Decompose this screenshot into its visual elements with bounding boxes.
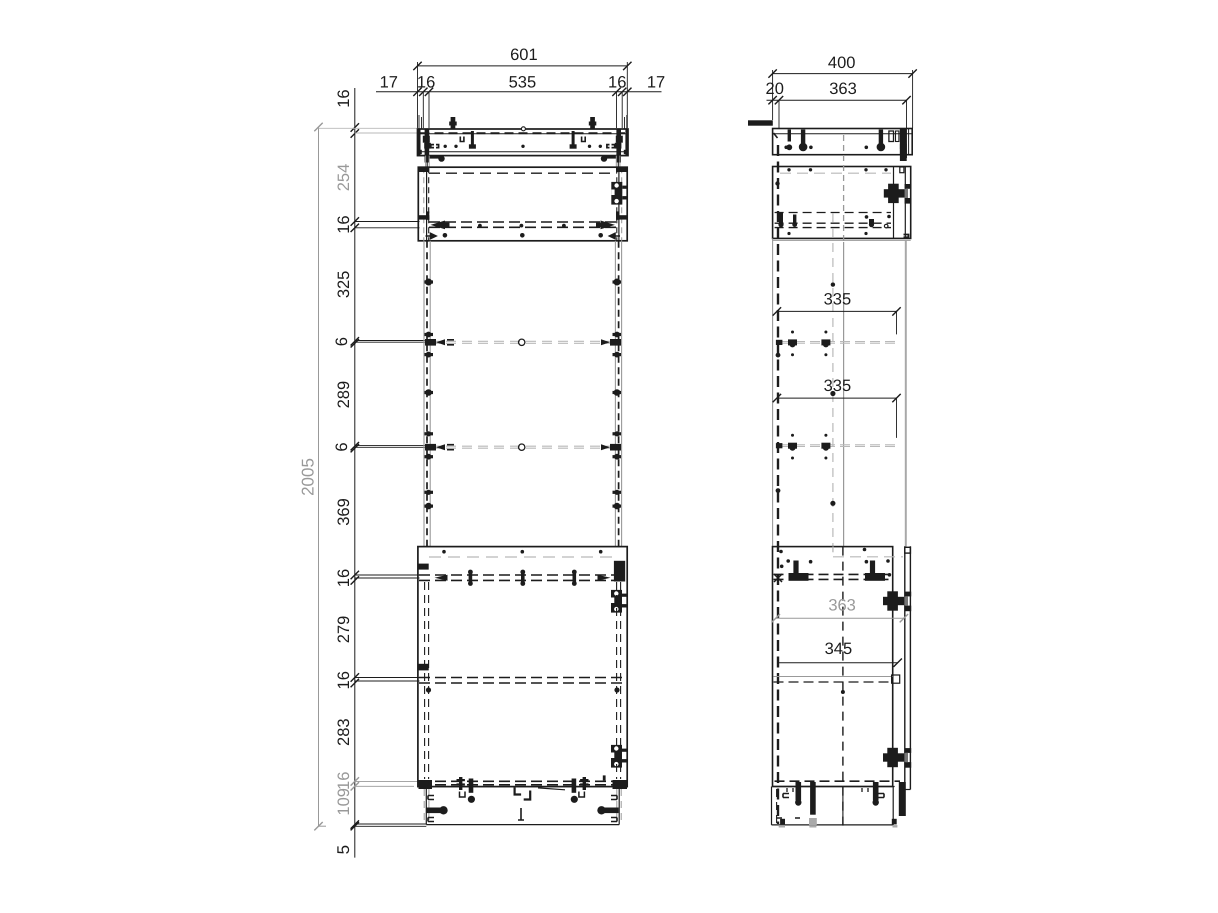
svg-text:17: 17 [380,73,398,91]
svg-text:279: 279 [335,616,353,644]
svg-text:363: 363 [829,80,857,98]
svg-text:17: 17 [647,73,665,91]
svg-text:6: 6 [333,337,351,346]
svg-text:363: 363 [828,597,856,615]
svg-text:289: 289 [335,381,353,409]
svg-text:369: 369 [335,498,353,526]
svg-text:6: 6 [333,442,351,451]
svg-text:601: 601 [510,46,538,64]
svg-text:16: 16 [335,671,353,689]
svg-text:16: 16 [335,772,353,790]
svg-text:20: 20 [766,80,784,98]
svg-text:16: 16 [335,89,353,107]
svg-text:16: 16 [335,215,353,233]
svg-text:109: 109 [335,788,353,816]
svg-text:335: 335 [824,377,852,395]
svg-text:16: 16 [608,73,626,91]
svg-text:400: 400 [828,54,856,72]
svg-text:335: 335 [824,291,852,309]
svg-text:254: 254 [335,164,353,192]
svg-text:283: 283 [335,718,353,746]
svg-text:2005: 2005 [299,458,318,496]
svg-text:535: 535 [509,73,537,91]
svg-text:5: 5 [334,845,353,854]
svg-text:345: 345 [825,640,853,658]
svg-text:16: 16 [335,569,353,587]
svg-text:325: 325 [335,271,353,299]
